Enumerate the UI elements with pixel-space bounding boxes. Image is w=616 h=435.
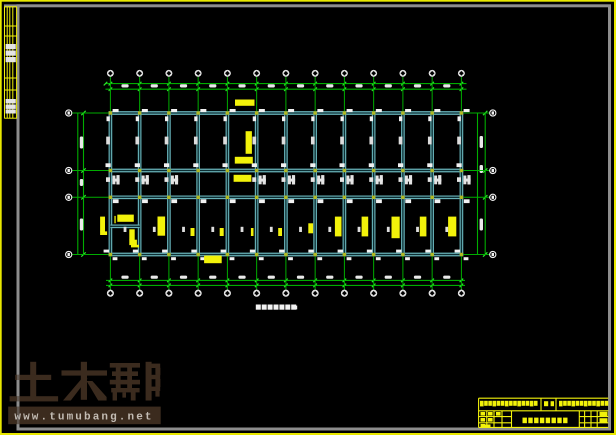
svg-text:www.tumubang.net: www.tumubang.net	[14, 412, 153, 424]
